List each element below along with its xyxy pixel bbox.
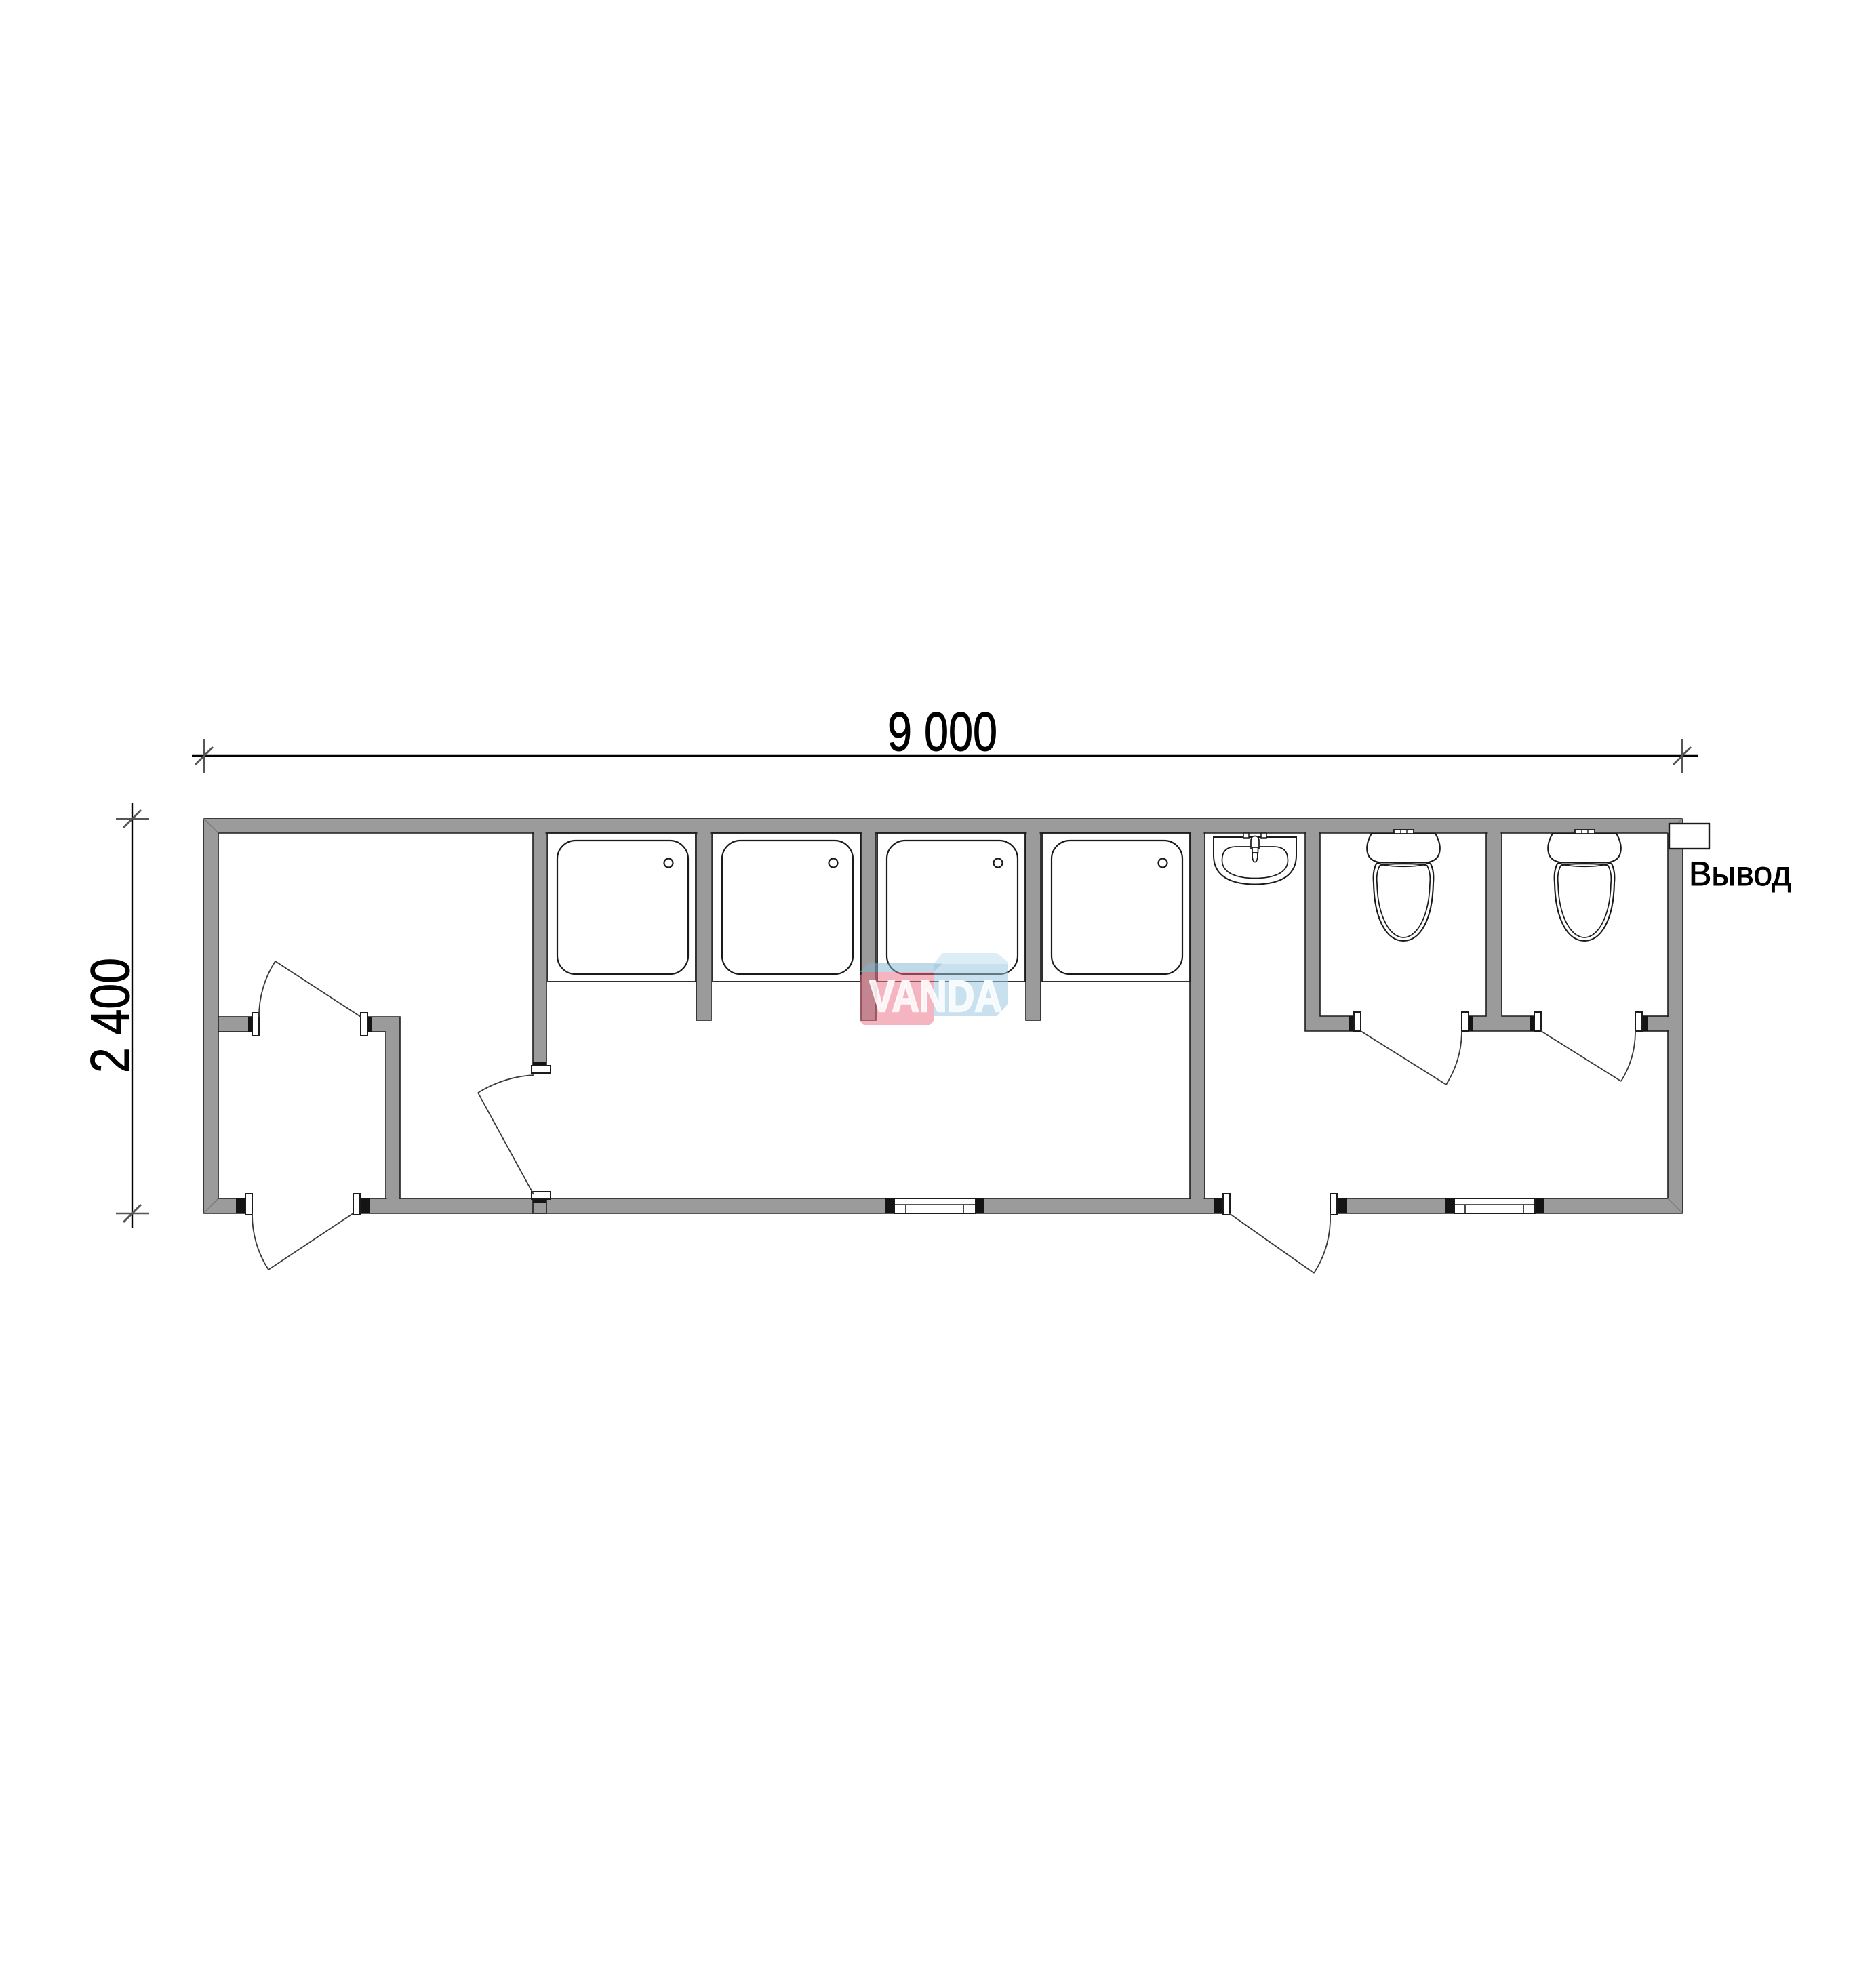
svg-text:2 400: 2 400 [80,958,141,1073]
svg-text:VANDA: VANDA [869,971,1002,1021]
svg-text:9 000: 9 000 [887,702,997,763]
svg-text:Вывод: Вывод [1689,855,1791,893]
